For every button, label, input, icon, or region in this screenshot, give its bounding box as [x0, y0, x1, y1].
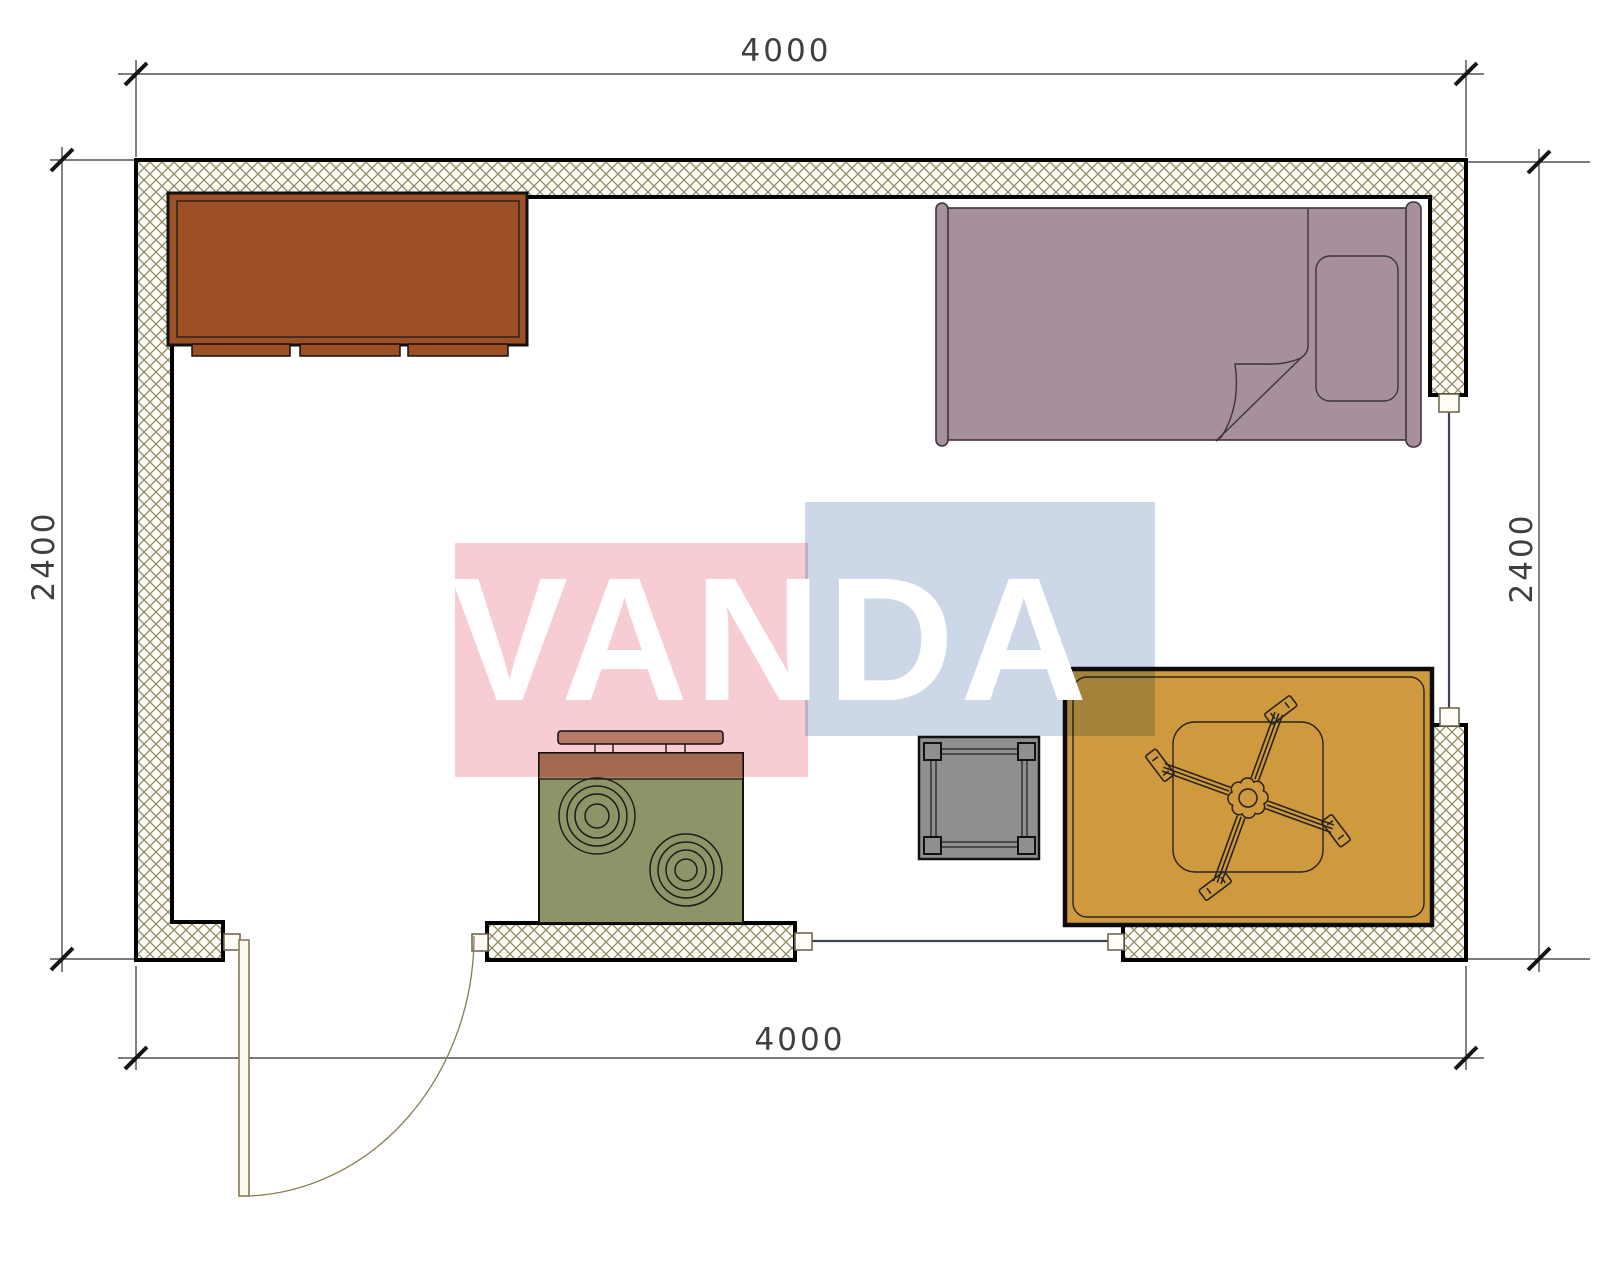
side-table-leg: [1018, 837, 1035, 854]
door: [224, 934, 488, 1196]
bed-footboard: [936, 203, 948, 446]
door-swing-arc: [249, 936, 474, 1196]
left-dimension-line: [50, 147, 140, 972]
single-bed: [936, 202, 1421, 447]
watermark-logo: VANDA: [448, 560, 1096, 760]
cabinet-body: [168, 193, 527, 345]
dimension-label-bottom: 4000: [700, 1022, 900, 1058]
dimension-label-right: 2400: [1504, 458, 1540, 658]
door-leaf: [239, 940, 249, 1196]
window-jamb: [795, 933, 812, 950]
dimension-label-top: 4000: [686, 33, 886, 69]
cabinet-foot: [408, 344, 508, 356]
floor-plan-canvas: VANDA 4000 4000 2400 2400: [0, 0, 1600, 1280]
cabinet: [168, 193, 527, 356]
top-dimension-line: [118, 60, 1484, 157]
window-jamb: [1440, 708, 1459, 726]
window-jamb: [1108, 934, 1124, 950]
door-hinge-jamb: [224, 934, 240, 950]
dimension-label-left: 2400: [26, 456, 62, 656]
bed-mattress: [947, 208, 1408, 440]
cabinet-foot: [192, 344, 290, 356]
wall-bottom-middle: [487, 923, 795, 960]
window-jamb: [1439, 394, 1459, 412]
side-table-leg: [924, 837, 941, 854]
bed-headboard: [1406, 202, 1421, 447]
cabinet-foot: [300, 344, 400, 356]
window-right: [1439, 394, 1459, 726]
window-bottom: [795, 933, 1124, 950]
